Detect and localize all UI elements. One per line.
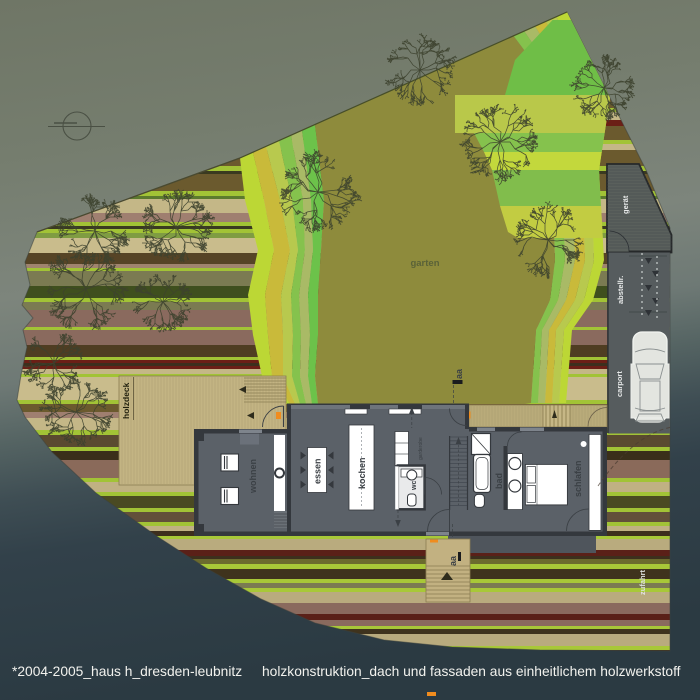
svg-text:gerät: gerät [621,195,630,214]
svg-text:essen: essen [313,458,323,484]
svg-text:kochen: kochen [357,457,367,489]
svg-text:zufahrt: zufahrt [638,570,647,596]
svg-text:aa: aa [448,555,458,566]
svg-text:abstellr.: abstellr. [616,276,625,304]
svg-text:carport: carport [615,371,624,397]
svg-text:garderobe: garderobe [418,437,424,460]
svg-text:holzkonstruktion_dach und fass: holzkonstruktion_dach und fassaden aus e… [262,664,681,679]
svg-text:wohnen: wohnen [248,459,258,494]
svg-text:holzdeck: holzdeck [121,382,131,419]
svg-text:schlafen: schlafen [573,460,583,497]
svg-text:aa: aa [454,368,464,379]
svg-text:bad: bad [494,473,504,489]
svg-text:garten: garten [410,258,439,269]
svg-text:*2004-2005_haus h_dresden-leub: *2004-2005_haus h_dresden-leubnitz [12,664,242,679]
svg-text:wc: wc [411,481,418,491]
